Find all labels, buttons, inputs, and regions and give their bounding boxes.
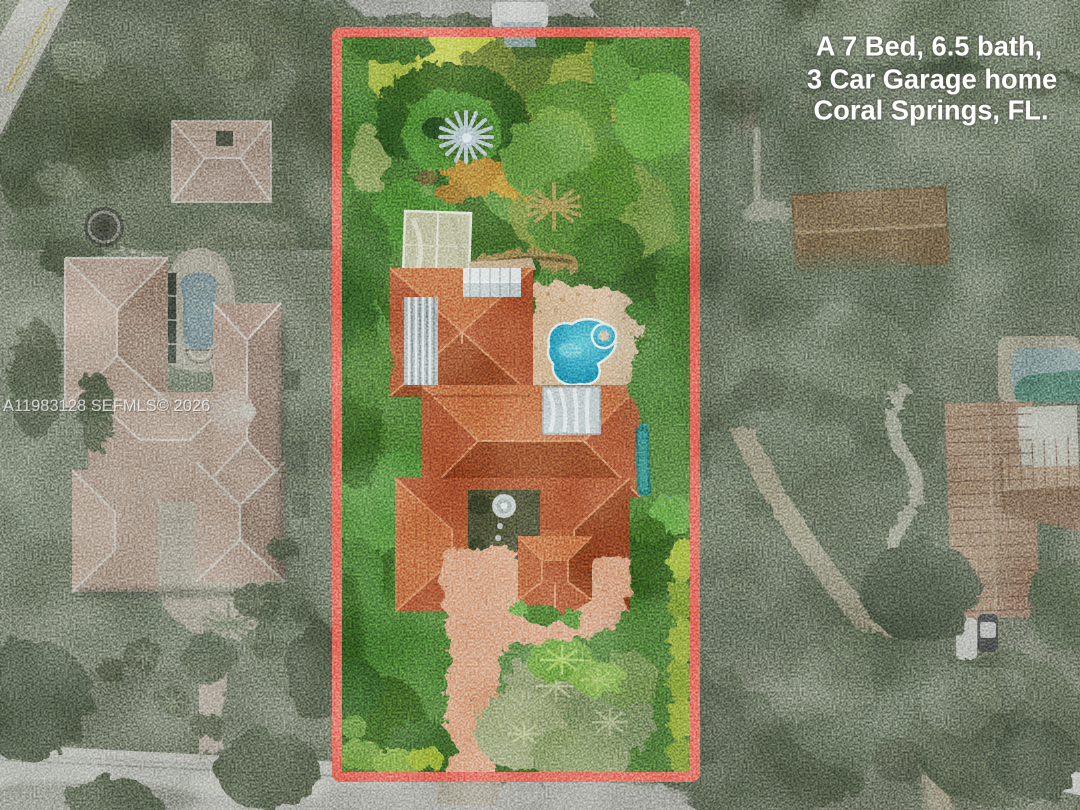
svg-text:A11983128 SEFMLS© 2026: A11983128 SEFMLS© 2026 bbox=[3, 397, 210, 415]
svg-text:3 Car Garage home: 3 Car Garage home bbox=[807, 64, 1057, 95]
svg-text:Coral Springs, FL.: Coral Springs, FL. bbox=[813, 95, 1048, 126]
svg-text:A 7 Bed, 6.5 bath,: A 7 Bed, 6.5 bath, bbox=[816, 31, 1043, 62]
